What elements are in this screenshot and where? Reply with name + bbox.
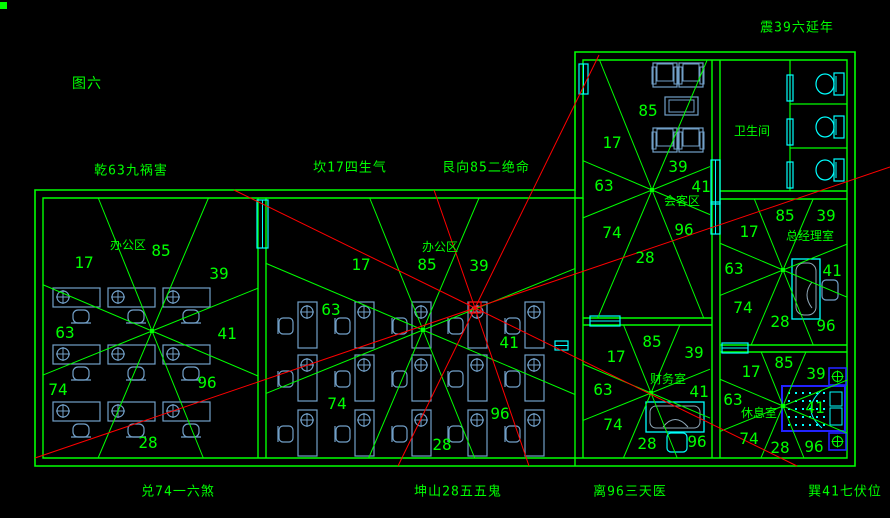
armchair-seat [683,64,699,81]
window-icon [787,162,793,188]
mattress-dot [802,416,804,418]
armchair [678,63,704,87]
mattress-dot [816,408,818,410]
workstation-marker-icon [166,347,180,361]
desk [335,302,374,348]
mattress-dot [816,400,818,402]
toilet-bowl [816,117,834,137]
chair [183,367,199,380]
workstation-marker-icon [111,290,125,304]
desk [108,345,155,380]
desk [278,355,317,401]
red-ray [398,308,475,466]
armchair-seat [657,64,673,81]
workstation-marker-icon [300,305,314,319]
star-center [650,188,654,192]
table-inner [669,100,694,112]
workstation-marker-icon [357,358,371,372]
mattress-dot [809,424,811,426]
star-ray [266,330,423,393]
chair [279,318,293,334]
mattress-dot [823,408,825,410]
chair [393,426,407,442]
mattress-dot [802,400,804,402]
red-ray [475,308,797,466]
window-icon [787,119,793,145]
chair [506,318,520,334]
armchair [652,63,678,87]
workstation-marker-icon [56,347,70,361]
mattress-dot [802,392,804,394]
star-ray [598,190,652,318]
desk [448,355,487,401]
desk [392,355,431,401]
red-ray [475,167,890,308]
toilet [816,116,844,138]
mattress-dot [788,416,790,418]
star-ray [599,60,652,190]
chair [336,371,350,387]
chair [279,371,293,387]
star-center [150,329,154,333]
mattress-dot [795,392,797,394]
floorplan-canvas[interactable] [0,0,890,518]
pillow [830,408,842,425]
desk [108,288,155,323]
workstation-marker-icon [470,413,484,427]
star-ray [369,330,423,458]
workstation-marker-icon [527,358,541,372]
mattress-dot [795,424,797,426]
outer-wall-outline [35,52,855,466]
star-rest [720,352,847,458]
desk [392,410,431,456]
chair [336,318,350,334]
desk [335,355,374,401]
workstation-marker-icon [300,413,314,427]
origin-marker [0,2,7,9]
chair [73,424,89,437]
desk [163,402,210,437]
red-ray [35,308,475,458]
desk [505,410,544,456]
outer-wall-inner-face [43,60,847,458]
chair [449,426,463,442]
mattress-dot [809,400,811,402]
bed [782,368,846,450]
chair [128,310,144,323]
chair [449,318,463,334]
mattress-dot [788,400,790,402]
window-icon [787,75,793,101]
floorplan-stage[interactable]: 图六 乾63九祸害坎17四生气艮向85二绝命震39六延年兑74一六煞坤山28五五… [0,0,890,518]
armchair [652,128,678,152]
workstation-marker-icon [470,358,484,372]
mattress-dot [809,392,811,394]
workstation-marker-icon [527,305,541,319]
workstation-marker-icon [527,413,541,427]
mattress-dot [802,424,804,426]
star-center [781,404,785,408]
mattress-dot [823,416,825,418]
chair [279,426,293,442]
chair [506,371,520,387]
red-ray [475,308,529,466]
workstation-marker-icon [357,413,371,427]
star-ray [423,269,575,330]
star-diagrams [43,60,847,458]
finance-desk [646,402,704,452]
chair [73,367,89,380]
chair [183,310,199,323]
desk-inner [796,263,816,315]
mattress-dot [788,424,790,426]
star-manager [720,199,847,345]
chair [73,310,89,323]
desk [505,302,544,348]
star-ray [423,198,479,330]
mattress-dot [823,424,825,426]
star-ray [423,330,575,395]
chair [667,433,687,452]
chair [183,424,199,437]
desk-curve [663,420,688,428]
toilet-bowl [816,160,834,180]
pillow [830,392,842,406]
desk [53,345,100,380]
workstation-marker-icon [56,404,70,418]
armchair [678,128,704,152]
desk [53,402,100,437]
red-ray [234,190,475,308]
star-meeting [583,60,710,318]
star-center [421,328,425,332]
armchair-seat [657,129,673,146]
armchair-seat [683,129,699,146]
chair [449,371,463,387]
toilet [816,159,844,181]
window-icon [579,64,588,94]
star-finance [583,325,710,458]
desk [448,410,487,456]
desk [335,410,374,456]
desk [505,355,544,401]
workstation-marker-icon [111,347,125,361]
workstation-marker-icon [56,290,70,304]
toilet-bowl [816,74,834,94]
star-ray [152,198,208,331]
walls [0,2,855,466]
coffee-table [665,97,698,115]
star-center [781,268,785,272]
desk [163,288,210,323]
star-ray [98,198,152,331]
furniture [53,63,846,456]
mattress-dot [823,400,825,402]
star-ray [266,263,423,330]
desk-curve [807,282,812,308]
chair [336,426,350,442]
desk [278,302,317,348]
desk [278,410,317,456]
mattress-dot [823,392,825,394]
mattress-dot [802,408,804,410]
star-ray [370,198,423,330]
mattress-dot [816,416,818,418]
workstation-marker-icon [414,413,428,427]
mattress-dot [795,408,797,410]
mattress-dot [795,416,797,418]
workstation-marker-icon [414,358,428,372]
toilet [816,73,844,95]
red-ray [475,55,599,308]
